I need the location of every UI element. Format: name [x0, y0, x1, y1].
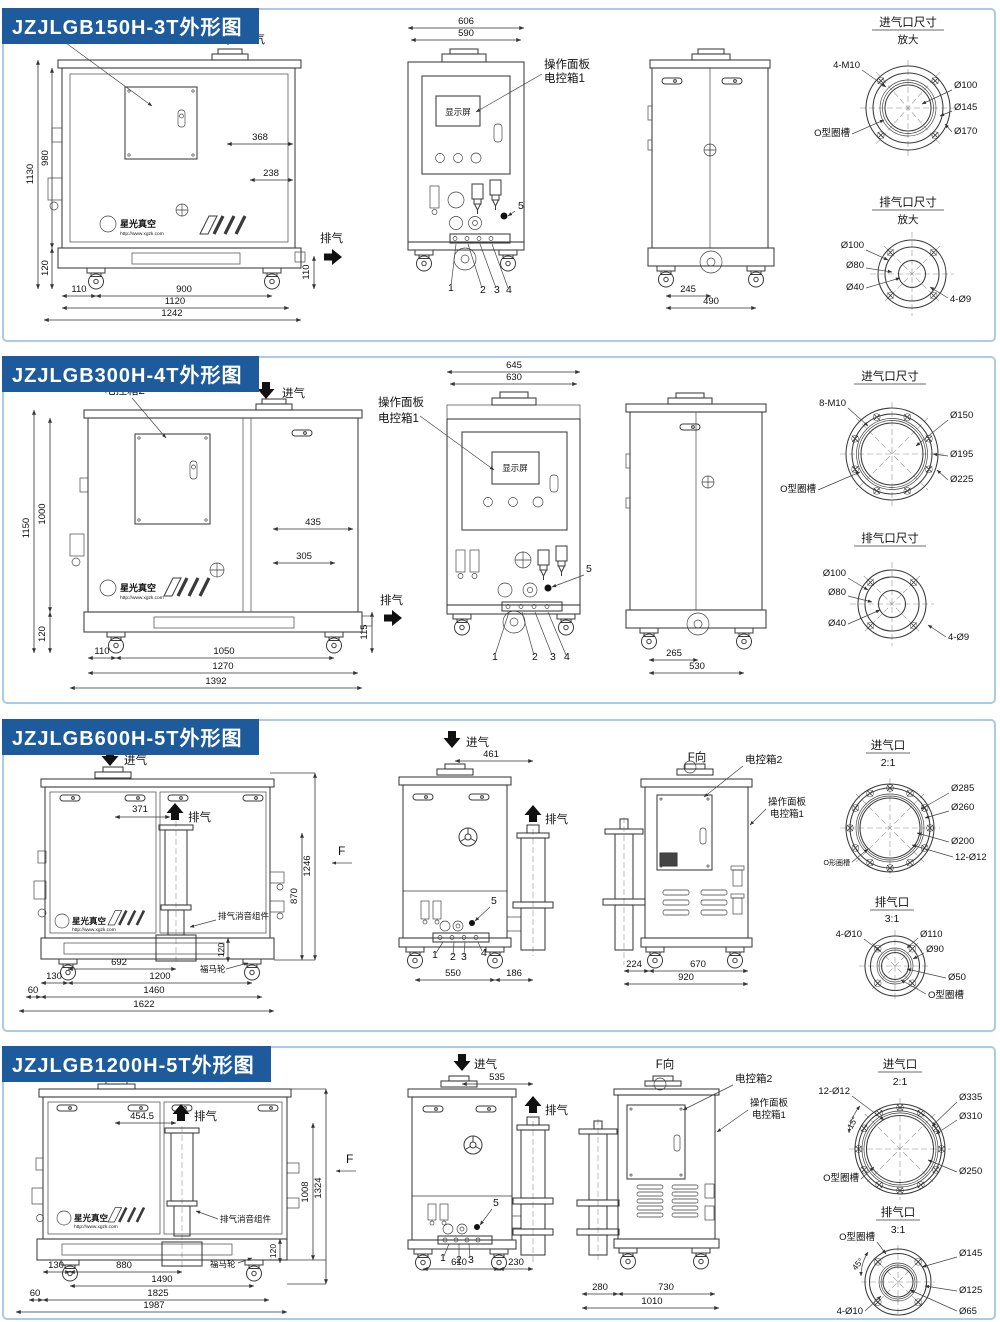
brand-text: 星光真空 — [120, 582, 156, 593]
label-muffler: 排气消音组件 — [218, 911, 270, 921]
dim-1987: 1987 — [143, 1300, 164, 1311]
dim-120: 120 — [216, 943, 226, 957]
intake-d3: Ø225 — [950, 474, 973, 485]
exhaust-port-scale: 3:1 — [885, 913, 900, 925]
exhaust-port-title: 排气口 — [875, 895, 910, 909]
intake-d2: Ø310 — [959, 1111, 982, 1122]
brand-url: http://www.xgzk.com — [74, 1224, 118, 1230]
dim-245: 245 — [680, 284, 696, 295]
view-300h-left — [70, 399, 372, 653]
intake-oring: O形圈槽 — [824, 858, 850, 867]
exhaust-bolts: 4-Ø10 — [836, 929, 862, 940]
panel4-title: JZJLGB1200H-5T外形图 — [2, 1046, 271, 1082]
label-fview: F向 — [656, 1057, 675, 1071]
brand-text: 星光真空 — [120, 218, 156, 229]
label-intake: 进气 — [474, 1057, 497, 1071]
label-fview: F向 — [688, 750, 707, 764]
dim-265: 265 — [666, 648, 682, 659]
panel-jzjlgb1200h: JZJLGB1200H-5T外形图 星光真空 http://www.xgzk.c… — [2, 1046, 996, 1320]
dim-1130: 1130 — [25, 164, 36, 184]
dim-60: 60 — [28, 985, 39, 996]
exhaust-bolts: 4-Ø9 — [950, 294, 971, 305]
panel-jzjlgb600h: JZJLGB600H-5T外形图 星光真空 http://www.xgzk.co… — [2, 719, 996, 1032]
dim-645: 645 — [506, 360, 522, 371]
exhaust-d3: Ø65 — [959, 1306, 977, 1317]
exhaust-d1: Ø145 — [959, 1248, 982, 1259]
exhaust-port-scale: 放大 — [898, 213, 919, 226]
port-150h-exhaust: 排气口尺寸 放大 Ø100 Ø80 Ø40 4-Ø9 — [841, 195, 971, 316]
dim-980: 980 — [40, 150, 51, 166]
exhaust-oring: O型圈槽 — [928, 989, 964, 1001]
dim-4545: 454.5 — [130, 1111, 154, 1122]
label-f: F — [346, 1152, 353, 1166]
intake-d2: Ø145 — [954, 102, 977, 113]
label-caster: 福马轮 — [210, 1259, 236, 1269]
dim-880: 880 — [116, 1260, 132, 1271]
dim-1246: 1246 — [302, 855, 313, 876]
dim-224: 224 — [626, 959, 642, 970]
dim-530: 530 — [689, 661, 705, 672]
callout-5: 5 — [518, 200, 524, 212]
dim-1150: 1150 — [21, 518, 32, 538]
dim-1008: 1008 — [300, 1181, 311, 1202]
intake-port-scale: 放大 — [898, 33, 919, 46]
brand-url: http://www.xgzk.com — [72, 927, 116, 933]
label-f: F — [338, 844, 345, 858]
intake-d3: Ø250 — [959, 1166, 982, 1177]
dim-670: 670 — [690, 959, 706, 970]
dim-920: 920 — [678, 972, 694, 983]
label-screen: 显示屏 — [445, 107, 471, 117]
view-1200h-left — [32, 1079, 299, 1281]
dim-305: 305 — [296, 551, 312, 562]
dim-368: 368 — [252, 132, 268, 143]
dim-115: 115 — [359, 624, 370, 639]
dim-1270: 1270 — [212, 661, 233, 672]
dim-692: 692 — [111, 957, 127, 968]
dim-1200: 1200 — [149, 971, 170, 982]
exhaust-bolts: 4-Ø9 — [948, 632, 969, 643]
drawing-jzjlgb150h: 星光真空 http://www.xgzk.com 电控箱2 进气 1130 98… — [4, 10, 994, 340]
port-300h-exhaust: 排气口尺寸 Ø100 Ø80 Ø40 4-Ø9 — [823, 531, 969, 646]
dim-1825: 1825 — [147, 1288, 168, 1299]
panel1-title: JZJLGB150H-3T外形图 — [2, 8, 259, 44]
intake-port-title: 进气口尺寸 — [879, 15, 937, 29]
dim-610: 610 — [451, 1257, 467, 1268]
dim-371: 371 — [132, 804, 148, 815]
exhaust-port-title: 排气口尺寸 — [861, 531, 919, 545]
exhaust-d3: Ø40 — [828, 618, 846, 629]
exhaust-bolts: 4-Ø10 — [837, 1306, 863, 1317]
label-exhaust: 排气 — [545, 1103, 568, 1117]
label-op-panel: 操作面板 — [750, 1097, 789, 1109]
callout-1: 1 — [492, 651, 498, 663]
label-muffler: 排气消音组件 — [220, 1214, 272, 1224]
exhaust-angle: 45° — [850, 1256, 866, 1272]
dim-120: 120 — [40, 260, 51, 276]
view-150h-rear — [648, 49, 774, 287]
brand-url: http://www.xgzk.com — [120, 231, 164, 237]
view-600h-left — [34, 767, 284, 980]
brand-text: 星光真空 — [72, 916, 107, 926]
label-exhaust: 排气 — [380, 593, 403, 607]
dim-461: 461 — [483, 749, 499, 760]
exhaust-d1: Ø110 — [920, 929, 943, 940]
view-300h-front — [447, 392, 580, 635]
panel-jzjlgb300h: JZJLGB300H-4T外形图 星光真空 http://www.xgzk.co… — [2, 356, 996, 704]
exhaust-d2: Ø80 — [846, 260, 864, 271]
port-1200h-exhaust: 排气口 3:1 O型圈槽 45° Ø145 Ø125 Ø65 4-Ø10 — [837, 1205, 983, 1317]
exhaust-d2: Ø90 — [926, 944, 944, 955]
dim-870: 870 — [289, 888, 300, 904]
dim-130: 130 — [48, 1260, 64, 1271]
intake-oring: O型圈槽 — [814, 127, 850, 139]
view-300h-rear — [626, 393, 766, 649]
exhaust-oring: O型圈槽 — [839, 1231, 875, 1243]
dim-1490: 1490 — [151, 1274, 172, 1285]
exhaust-port-title: 排气口尺寸 — [879, 195, 937, 209]
intake-d1: Ø335 — [959, 1092, 982, 1103]
intake-port-title: 进气口 — [871, 738, 906, 752]
dim-1622: 1622 — [133, 999, 154, 1010]
label-op-panel: 操作面板 — [544, 57, 590, 71]
label-intake: 进气 — [282, 386, 305, 400]
dim-110: 110 — [94, 646, 109, 657]
dim-280: 280 — [592, 1282, 608, 1293]
callout-2: 2 — [480, 284, 486, 296]
label-ebox1: 电控箱1 — [378, 411, 419, 425]
panel2-title: JZJLGB300H-4T外形图 — [2, 356, 259, 392]
dim-550: 550 — [445, 968, 461, 979]
port-600h-intake: 进气口 2:1 Ø285 Ø260 Ø200 12-Ø12 O形圈槽 — [824, 738, 987, 878]
intake-d1: Ø100 — [954, 80, 977, 91]
callout-4: 4 — [481, 947, 487, 959]
dim-1392: 1392 — [205, 676, 226, 687]
dim-630: 630 — [506, 372, 522, 383]
exhaust-d1: Ø100 — [823, 568, 846, 579]
exhaust-d3: Ø50 — [948, 972, 966, 983]
callout-5: 5 — [586, 563, 592, 575]
port-300h-intake: 进气口尺寸 8-M10 Ø150 Ø195 Ø225 O型圈槽 — [780, 369, 973, 506]
panel-jzjlgb150h: JZJLGB150H-3T外形图 星光真空 http://www.xgzk.co… — [2, 8, 996, 342]
exhaust-d2: Ø125 — [959, 1285, 982, 1296]
intake-port-scale: 2:1 — [881, 757, 896, 769]
view-600h-fview — [603, 761, 752, 968]
drawing-jzjlgb1200h: 星光真空 http://www.xgzk.com 进气 454.5 排气 排气消… — [4, 1048, 994, 1318]
intake-bolts: 12-Ø12 — [818, 1086, 850, 1097]
dim-120: 120 — [268, 1244, 278, 1258]
dim-730: 730 — [658, 1282, 674, 1293]
label-screen: 显示屏 — [502, 463, 528, 473]
drawing-jzjlgb300h: 星光真空 http://www.xgzk.com 电控箱2 进气 1150 10… — [4, 358, 994, 702]
intake-d2: Ø195 — [950, 449, 973, 460]
intake-bolts: 4-M10 — [833, 60, 860, 71]
dim-1242: 1242 — [161, 308, 182, 319]
dim-1050: 1050 — [213, 646, 234, 657]
intake-d3: Ø170 — [954, 126, 977, 137]
intake-port-title: 进气口 — [883, 1057, 918, 1071]
label-intake: 进气 — [466, 735, 489, 749]
intake-port-scale: 2:1 — [893, 1076, 908, 1088]
label-ebox2: 电控箱2 — [735, 1072, 772, 1085]
view-600h-front — [399, 764, 553, 968]
port-600h-exhaust: 排气口 3:1 4-Ø10 Ø110 Ø90 Ø50 O型圈槽 — [836, 895, 966, 1002]
dim-1120: 1120 — [165, 296, 185, 307]
intake-d1: Ø150 — [950, 410, 973, 421]
label-exhaust: 排气 — [194, 1109, 217, 1123]
dim-130: 130 — [46, 971, 62, 982]
dim-590: 590 — [458, 28, 474, 39]
dim-606: 606 — [458, 16, 474, 27]
label-ebox1: 电控箱1 — [544, 71, 585, 85]
intake-d1: Ø285 — [951, 783, 974, 794]
brand-text: 星光真空 — [74, 1213, 109, 1223]
dim-110b: 110 — [71, 284, 86, 295]
dim-900: 900 — [176, 284, 192, 295]
dim-120: 120 — [37, 626, 48, 642]
dim-1324: 1324 — [313, 1177, 324, 1198]
label-exhaust: 排气 — [188, 810, 211, 824]
view-1200h-fview — [577, 1076, 719, 1269]
label-ebox1: 电控箱1 — [770, 808, 804, 820]
intake-d2: Ø260 — [951, 802, 974, 813]
panel3-title: JZJLGB600H-5T外形图 — [2, 719, 259, 755]
dim-1460: 1460 — [143, 985, 164, 996]
dim-230: 230 — [508, 1257, 524, 1268]
drawing-jzjlgb600h: 星光真空 http://www.xgzk.com 进气 371 排气 排气消音组… — [4, 721, 994, 1030]
label-intake: 进气 — [124, 753, 147, 767]
label-caster: 福马轮 — [200, 964, 226, 974]
dim-435: 435 — [305, 517, 321, 528]
intake-oring: O型圈槽 — [823, 1172, 859, 1184]
exhaust-d1: Ø100 — [841, 240, 864, 251]
port-150h-intake: 进气口尺寸 放大 4-M10 Ø100 Ø145 Ø170 O型圈槽 — [814, 15, 977, 156]
dim-110v: 110 — [301, 264, 312, 279]
dim-1010: 1010 — [641, 1296, 662, 1307]
callout-3: 3 — [468, 1254, 474, 1266]
intake-bolts: 8-M10 — [819, 398, 846, 409]
exhaust-port-scale: 3:1 — [891, 1224, 906, 1236]
view-150h-front — [408, 49, 524, 271]
label-exhaust: 排气 — [320, 231, 343, 245]
intake-oring: O型圈槽 — [780, 483, 816, 495]
dim-1000: 1000 — [37, 503, 48, 524]
intake-d3: Ø200 — [951, 836, 974, 847]
label-ebox1: 电控箱1 — [752, 1109, 786, 1121]
brand-url: http://www.xgzk.com — [120, 595, 164, 601]
callout-5: 5 — [491, 895, 497, 907]
callout-5: 5 — [493, 1197, 499, 1209]
label-op-panel: 操作面板 — [768, 796, 807, 808]
intake-angle: 15° — [845, 1115, 860, 1131]
label-exhaust: 排气 — [545, 812, 568, 826]
exhaust-d2: Ø80 — [828, 587, 846, 598]
intake-port-title: 进气口尺寸 — [861, 369, 919, 383]
label-ebox2: 电控箱2 — [745, 753, 782, 766]
dim-60: 60 — [30, 1288, 41, 1299]
dim-238: 238 — [263, 168, 279, 179]
dim-186: 186 — [506, 968, 522, 979]
intake-bolts: 12-Ø12 — [955, 852, 987, 863]
callout-2: 2 — [532, 651, 538, 663]
port-1200h-intake: 进气口 2:1 12-Ø12 15° Ø335 Ø310 Ø250 O型圈槽 — [818, 1057, 982, 1200]
dim-490: 490 — [703, 296, 719, 307]
exhaust-d3: Ø40 — [846, 282, 864, 293]
dim-535: 535 — [489, 1072, 505, 1083]
exhaust-port-title: 排气口 — [881, 1205, 916, 1219]
label-op-panel: 操作面板 — [378, 395, 424, 409]
